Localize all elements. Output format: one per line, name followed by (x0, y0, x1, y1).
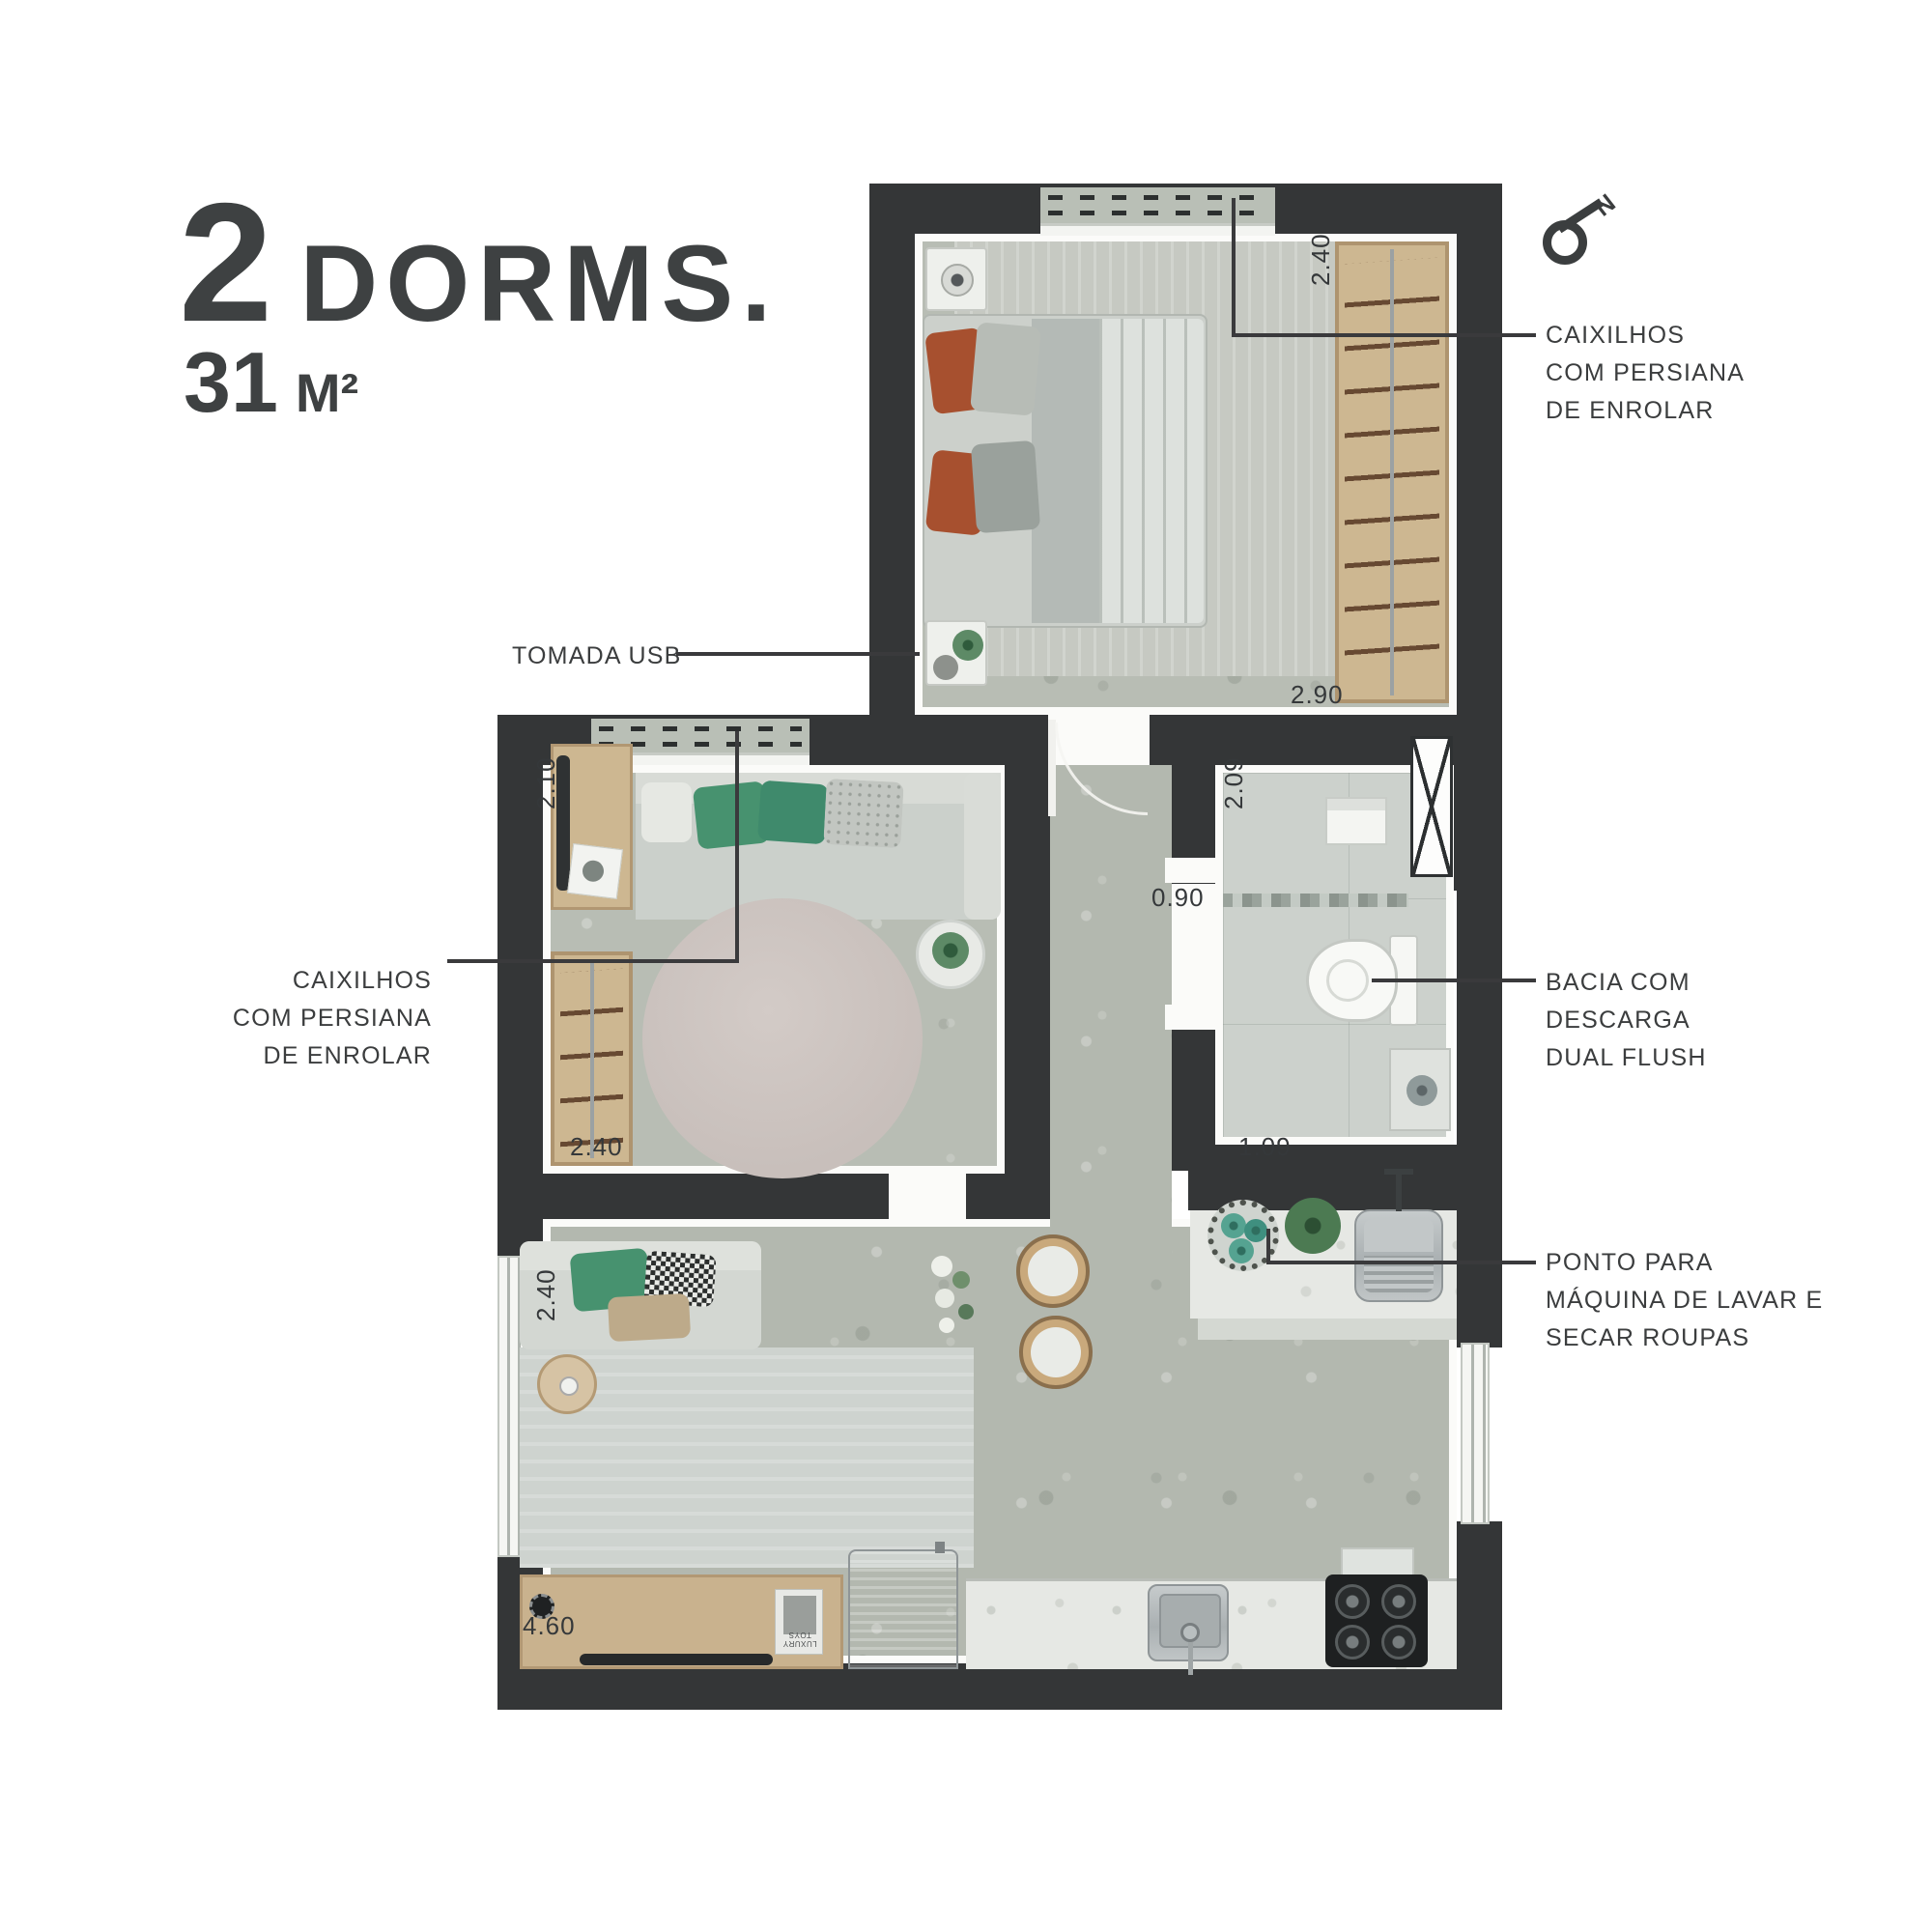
callout-line: COM PERSIANA (188, 1000, 432, 1037)
page-title: 2 DORMS. (179, 179, 779, 348)
callout-line: DUAL FLUSH (1546, 1039, 1707, 1077)
service-shelf (1198, 1319, 1457, 1340)
title-unit-label: DORMS. (299, 230, 779, 338)
lower-pillow-beige (608, 1293, 691, 1342)
wall-right (1457, 184, 1502, 1347)
callout-line: BACIA COM (1546, 964, 1707, 1002)
sofa-bolster (641, 782, 692, 842)
plant-icon (952, 630, 983, 661)
sofa-pillow-green-2 (757, 780, 829, 845)
leader-window-left-h (447, 959, 739, 963)
north-compass: N (1536, 188, 1642, 275)
callout-laundry: PONTO PARA MÁQUINA DE LAVAR E SECAR ROUP… (1546, 1244, 1823, 1357)
callout-window-left: CAIXILHOS COM PERSIANA DE ENROLAR (188, 962, 432, 1075)
title-unit-count: 2 (179, 179, 274, 348)
callout-line: MÁQUINA DE LAVAR E (1546, 1282, 1823, 1319)
faucet-icon (1188, 1642, 1193, 1675)
living-sofa (636, 773, 1001, 920)
leader-toilet-h (1372, 979, 1536, 982)
dim-living-left: 2.10 (531, 756, 561, 809)
callout-usb: TOMADA USB (512, 638, 681, 675)
callout-toilet: BACIA COM DESCARGA DUAL FLUSH (1546, 964, 1707, 1077)
burner-icon-4 (1381, 1625, 1416, 1660)
living-door-opening (889, 1174, 966, 1219)
bathroom-door-jamb-top (1165, 858, 1221, 883)
dim-kitchen-bottom: 4.60 (523, 1611, 576, 1641)
callout-line: DESCARGA (1546, 1002, 1707, 1039)
dim-bath-bottom: 1.09 (1238, 1132, 1292, 1162)
dim-hall: 0.90 (1151, 883, 1205, 913)
callout-line: DE ENROLAR (1546, 392, 1745, 430)
dim-living-bottom: 2.40 (570, 1132, 623, 1162)
towel-icon-3 (1229, 1238, 1254, 1263)
toilet-seat-icon (1326, 959, 1369, 1002)
wall-hall-left (1005, 715, 1050, 1219)
lower-right-glass-door (1461, 1343, 1490, 1524)
shaft-x-icon (1410, 736, 1453, 877)
cup-icon (559, 1376, 579, 1396)
towel-icon-2 (1244, 1219, 1267, 1242)
laundry-sink (1354, 1209, 1443, 1302)
bed-pillow-gray-1 (970, 322, 1041, 415)
leader-laundry-h (1266, 1261, 1536, 1264)
dim-bedroom-top: 2.40 (1306, 233, 1336, 286)
area-title: 31 M² (184, 340, 358, 425)
leader-laundry-v (1266, 1229, 1270, 1264)
burner-icon-3 (1335, 1625, 1370, 1660)
dim-bedroom-bottom: 2.90 (1291, 680, 1344, 710)
callout-line: CAIXILHOS (188, 962, 432, 1000)
book-decor (567, 843, 623, 899)
bed-pillow-gray-2 (971, 440, 1040, 533)
compass-north-label: N (1588, 188, 1621, 223)
sofa-pillow-knit (823, 779, 903, 848)
cooktop (1325, 1574, 1428, 1667)
appliance-handle-icon (935, 1542, 945, 1553)
bed-duvet (1099, 319, 1204, 623)
living-sideboard (551, 744, 633, 910)
area-unit: M² (296, 366, 358, 420)
bedroom-window (1040, 187, 1275, 236)
stool-2 (1019, 1316, 1093, 1389)
floor-hallway (1050, 765, 1172, 1267)
cutting-board (1341, 1547, 1414, 1576)
book-title: LUXURY TOYS (780, 1638, 820, 1648)
callout-line: TOMADA USB (512, 638, 681, 675)
area-value: 31 (184, 340, 278, 425)
callout-line: DE ENROLAR (188, 1037, 432, 1075)
nightstand-lamp (925, 247, 987, 311)
living-side-table (916, 920, 985, 989)
leader-usb-h (676, 652, 920, 656)
bowl-icon (933, 655, 958, 680)
bath-niche-shelf (1325, 797, 1387, 845)
living-round-rug (642, 898, 923, 1178)
leader-window-right-h (1232, 333, 1536, 337)
bed-blanket (1032, 319, 1099, 623)
kitchen-sink (1148, 1584, 1229, 1661)
bedroom-closet (1335, 241, 1449, 703)
vanity-sink-icon (1406, 1075, 1437, 1106)
kitchen-appliance (848, 1549, 958, 1669)
leader-window-right-v (1232, 198, 1236, 337)
bath-mosaic-strip (1223, 894, 1408, 907)
wall-lower-right (1457, 1521, 1502, 1663)
dim-lower-left: 2.40 (531, 1268, 561, 1321)
burner-icon-1 (1335, 1584, 1370, 1619)
wall-bedroom-left (869, 184, 915, 765)
bath-vanity (1389, 1048, 1451, 1131)
flower-decor (925, 1248, 1003, 1345)
towel-icon-1 (1221, 1213, 1246, 1238)
nightstand-plant (925, 620, 987, 686)
sofa-armrest (964, 773, 1001, 920)
leader-window-left-v (735, 731, 739, 963)
wall-bottom (497, 1663, 1502, 1710)
callout-window-right: CAIXILHOS COM PERSIANA DE ENROLAR (1546, 317, 1745, 430)
book-vase-icon (582, 859, 606, 883)
coffee-table-book: LUXURY TOYS (775, 1589, 823, 1655)
lower-side-table (537, 1354, 597, 1414)
tv-soundbar-icon (580, 1654, 773, 1665)
lamp-icon (941, 264, 974, 297)
callout-line: PONTO PARA (1546, 1244, 1823, 1282)
dim-bath-top: 2.09 (1219, 756, 1249, 809)
bathroom-door-jamb-bottom (1165, 1005, 1221, 1030)
burner-icon-2 (1381, 1584, 1416, 1619)
service-plant-icon (1285, 1198, 1341, 1254)
callout-line: CAIXILHOS (1546, 317, 1745, 355)
callout-line: COM PERSIANA (1546, 355, 1745, 392)
floorplan-page: { "header": { "units": "2", "units_label… (0, 0, 1932, 1929)
drain-icon (1180, 1623, 1200, 1642)
table-plant-icon (932, 932, 969, 969)
stool-1 (1016, 1234, 1090, 1308)
callout-line: SECAR ROUPAS (1546, 1319, 1823, 1357)
